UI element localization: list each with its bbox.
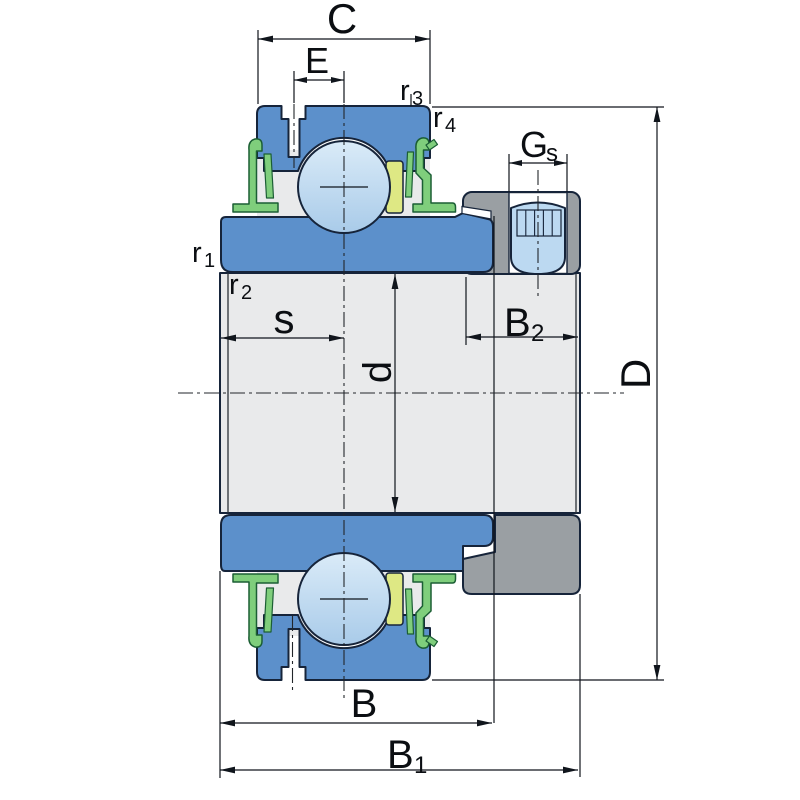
label-d: d (356, 361, 400, 383)
label-r2-sub: 2 (241, 282, 252, 304)
label-Gs-base: G (520, 124, 548, 165)
label-s: s (274, 295, 295, 342)
label-r3-base: r (400, 75, 410, 107)
label-B1-base: B (387, 733, 414, 777)
label-r4-base: r (433, 102, 443, 134)
label-B2-base: B (504, 301, 531, 345)
label-r1-base: r (192, 237, 202, 269)
label-r4-sub: 4 (445, 115, 456, 137)
label-Gs-sub: s (546, 140, 558, 167)
grub-screw (511, 203, 565, 275)
bearing-cross-section-drawing: C E r 3 r 4 G s r 1 r 2 s B 2 d D B B 1 (0, 0, 800, 800)
label-r3-sub: 3 (412, 88, 423, 110)
label-r1-sub: 1 (204, 250, 215, 272)
label-B2-sub: 2 (531, 320, 544, 347)
bearing-diagram-page: C E r 3 r 4 G s r 1 r 2 s B 2 d D B B 1 (0, 0, 800, 800)
label-D: D (612, 359, 659, 389)
label-r2-base: r (229, 269, 239, 301)
label-C: C (327, 0, 357, 42)
label-B1-sub: 1 (414, 752, 427, 779)
label-E: E (305, 40, 329, 81)
label-B: B (351, 682, 378, 726)
